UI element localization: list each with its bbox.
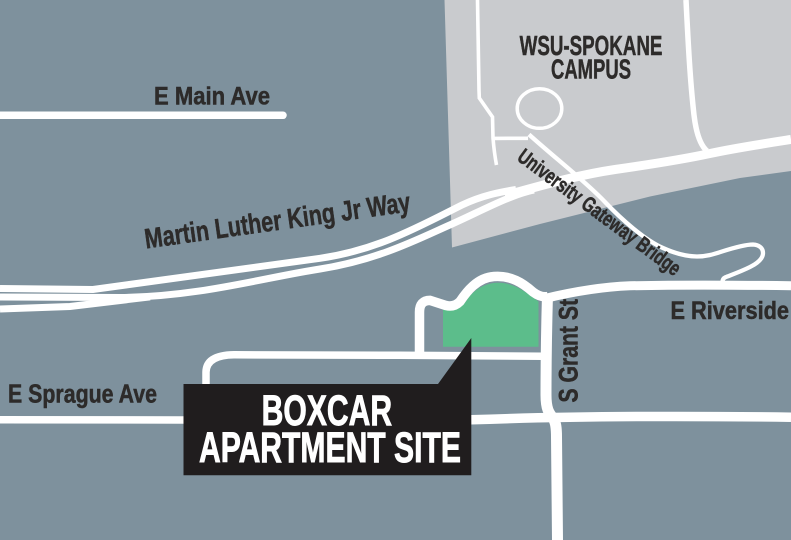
svg-text:E Main Ave: E Main Ave (154, 83, 270, 111)
svg-text:E Sprague Ave: E Sprague Ave (8, 378, 157, 408)
svg-text:CAMPUS: CAMPUS (551, 54, 631, 85)
svg-text:E Riverside: E Riverside (671, 297, 790, 325)
svg-text:APARTMENT SITE: APARTMENT SITE (199, 423, 461, 472)
svg-text:S Grant St: S Grant St (554, 299, 584, 403)
